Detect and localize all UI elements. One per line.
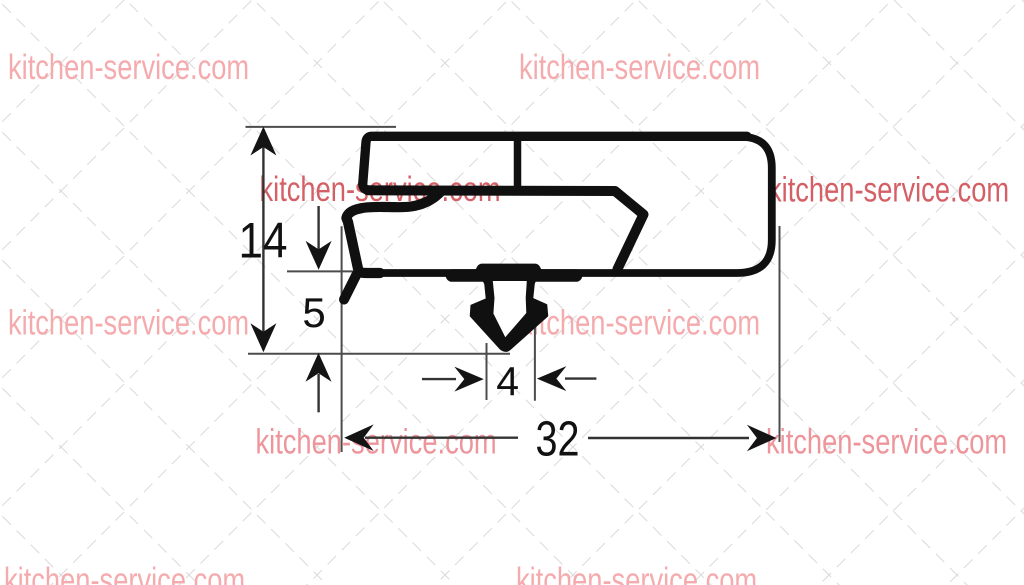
svg-text:kitchen-service.com: kitchen-service.com [519, 48, 760, 87]
svg-text:kitchen-service.com: kitchen-service.com [768, 170, 1009, 209]
svg-text:5: 5 [302, 289, 325, 336]
svg-text:kitchen-service.com: kitchen-service.com [519, 303, 760, 342]
svg-text:kitchen-service.com: kitchen-service.com [256, 422, 497, 461]
svg-text:kitchen-service.com: kitchen-service.com [8, 303, 249, 342]
svg-text:kitchen-service.com: kitchen-service.com [8, 48, 249, 87]
svg-text:kitchen-service.com: kitchen-service.com [766, 422, 1007, 461]
svg-text:32: 32 [536, 413, 580, 467]
svg-text:4: 4 [496, 359, 519, 405]
svg-text:14: 14 [239, 213, 288, 269]
svg-text:kitchen-service.com: kitchen-service.com [4, 561, 245, 585]
svg-text:kitchen-service.com: kitchen-service.com [516, 561, 757, 585]
